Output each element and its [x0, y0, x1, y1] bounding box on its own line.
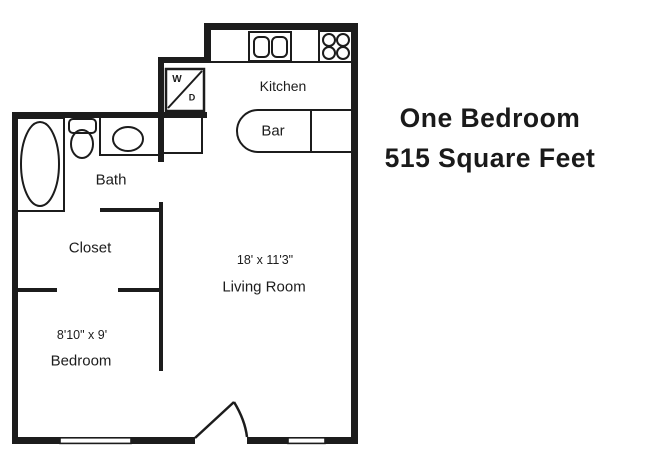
wall-bottom-segment-2 [131, 437, 195, 444]
kitchen-pantry-box [164, 118, 202, 153]
wall-closet-bedroom-left [12, 288, 57, 292]
floor-plan: Kitchen Bar Bath Closet 18' x 11'3" Livi… [0, 0, 650, 475]
window-living-room [288, 438, 325, 444]
living-room-dimensions: 18' x 11'3" [237, 254, 293, 267]
closet-label: Closet [69, 241, 112, 256]
floor-plan-drawing [0, 0, 650, 475]
bath-sink [113, 127, 143, 151]
wall-bottom-segment-3 [247, 437, 288, 444]
bar-label: Bar [261, 124, 284, 139]
wall-closet-bedroom-right [118, 288, 163, 292]
wall-bottom-segment-4 [325, 437, 358, 444]
wall-top [204, 23, 358, 30]
dryer-label: D [189, 94, 196, 103]
plan-title-line2: 515 Square Feet [340, 143, 640, 174]
bedroom-label: Bedroom [51, 354, 112, 369]
living-room-label: Living Room [222, 280, 305, 295]
bath-label: Bath [96, 173, 127, 188]
bathtub [21, 122, 59, 206]
wall-bottom-segment-1 [12, 437, 60, 444]
kitchen-label: Kitchen [260, 79, 307, 93]
bedroom-dimensions: 8'10" x 9' [57, 329, 107, 342]
wall-step-horizontal [158, 57, 211, 63]
washer-label: W [172, 75, 181, 85]
bath-vanity [100, 118, 159, 155]
bar-counter [237, 110, 351, 152]
bathtub-surround [17, 118, 64, 211]
entry-door-leaf [234, 402, 247, 437]
wall-step-vertical [158, 57, 164, 162]
plan-title-line1: One Bedroom [340, 103, 640, 134]
wall-bath-closet-divider [100, 208, 163, 212]
wall-bedroom-living [159, 202, 163, 371]
entry-door-swing [195, 402, 234, 438]
toilet-bowl [71, 130, 93, 158]
window-bedroom [60, 438, 131, 444]
wall-right [351, 23, 358, 444]
